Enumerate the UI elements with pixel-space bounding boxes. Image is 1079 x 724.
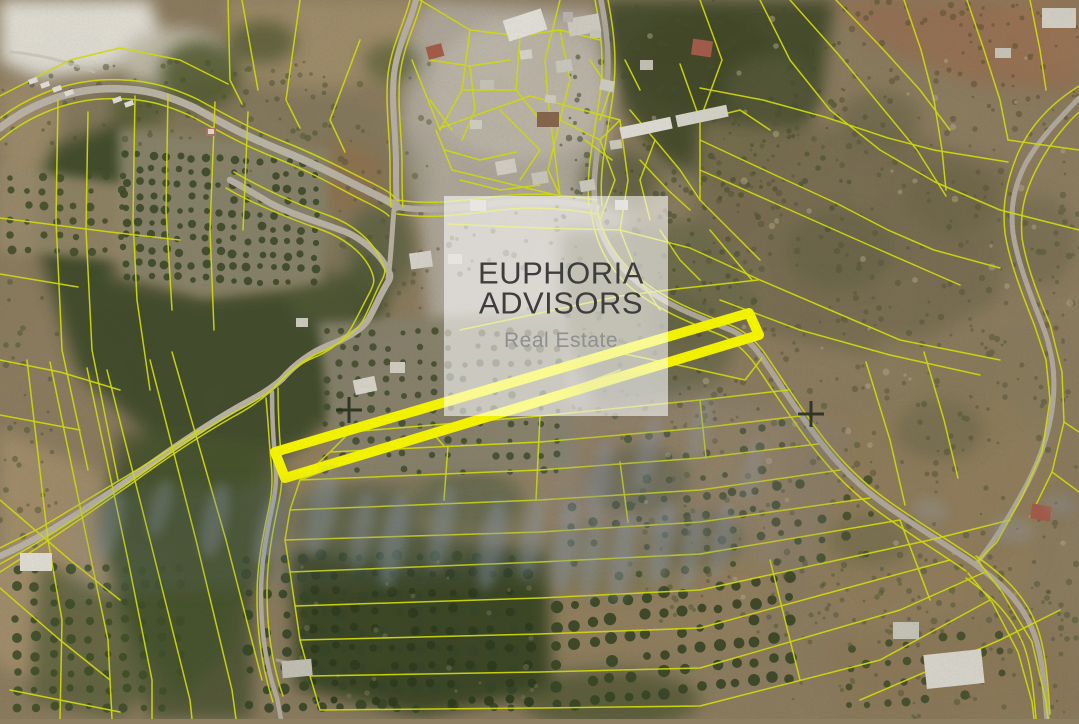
svg-text:Real Estate: Real Estate: [504, 329, 618, 352]
svg-text:ADVISORS: ADVISORS: [479, 286, 643, 321]
